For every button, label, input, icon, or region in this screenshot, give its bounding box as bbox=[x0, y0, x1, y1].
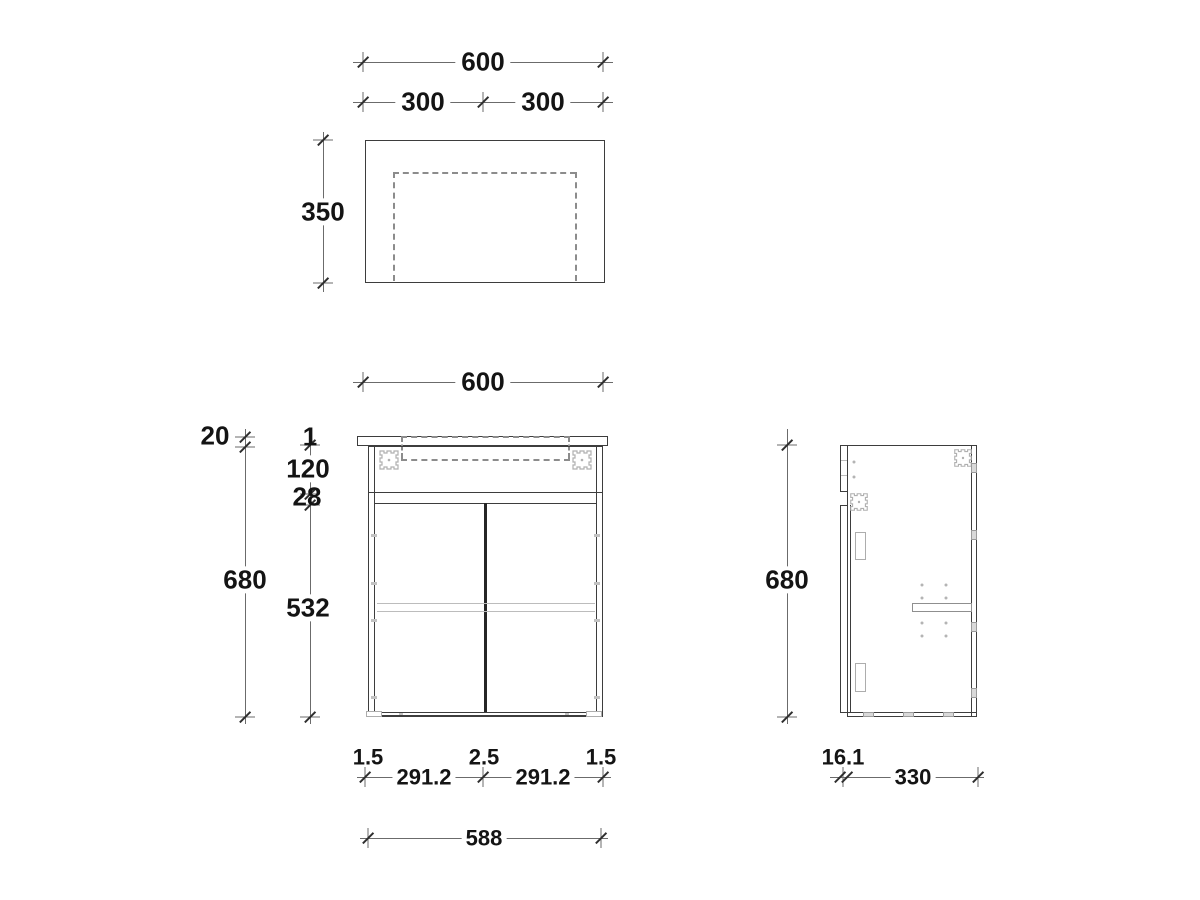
top-view-hidden-cabinet-top-edge bbox=[393, 172, 576, 174]
back-panel-connector bbox=[971, 463, 977, 473]
dim-label-top-depth: 350 bbox=[295, 198, 350, 225]
hinge-mark bbox=[371, 582, 377, 585]
hinge-mark bbox=[594, 534, 600, 537]
dim-label-countertop-thickness: 20 bbox=[199, 422, 232, 449]
hinge-mark bbox=[594, 696, 600, 699]
front-view-left-panel-inner-edge bbox=[374, 446, 375, 712]
hinge-mark bbox=[594, 582, 600, 585]
bottom-dowel-mark bbox=[903, 712, 914, 717]
hinge-mark bbox=[371, 619, 377, 622]
dim-label-gap-left: 1.5 bbox=[351, 745, 386, 768]
dim-label-gap-center: 2.5 bbox=[467, 745, 502, 768]
front-view-right-panel-inner-edge bbox=[596, 446, 597, 712]
dim-label-door-right: 291.2 bbox=[511, 765, 574, 788]
shelf-pin-hole bbox=[945, 635, 948, 638]
hanging-bracket-icon bbox=[570, 448, 594, 472]
hinge-plate bbox=[855, 532, 866, 560]
top-view-countertop-outline bbox=[365, 140, 605, 283]
top-view-hidden-cabinet-left-edge bbox=[393, 172, 395, 281]
bottom-fitting-mark bbox=[366, 711, 382, 717]
dim-tick bbox=[843, 767, 844, 787]
dim-label-carcass-width: 588 bbox=[462, 826, 507, 849]
shelf-pin-hole bbox=[945, 622, 948, 625]
front-view-hidden-shelf-bottom bbox=[377, 611, 595, 612]
cad-drawing-vanity-cabinet: 600 300 300 350 600 bbox=[0, 0, 1200, 900]
side-view-front-edge-line bbox=[850, 505, 851, 712]
shelf-pin-hole bbox=[921, 597, 924, 600]
side-view-body-outline bbox=[847, 445, 977, 717]
shelf-pin-hole bbox=[945, 597, 948, 600]
hanging-bracket-icon bbox=[848, 489, 870, 515]
dim-label-top-width: 600 bbox=[455, 48, 510, 75]
dim-label-front-height: 680 bbox=[217, 566, 272, 593]
dim-label-door-height: 532 bbox=[280, 594, 335, 621]
front-view-doors-bottom-edge bbox=[374, 712, 597, 713]
dim-label-top-right-half: 300 bbox=[515, 88, 570, 115]
hanging-bracket-icon bbox=[377, 448, 401, 472]
bottom-dowel-mark bbox=[863, 712, 874, 717]
shelf-pin-hole bbox=[921, 635, 924, 638]
hinge-mark bbox=[371, 696, 377, 699]
dim-label-gap-right: 1.5 bbox=[584, 745, 619, 768]
shelf-pin-hole bbox=[945, 584, 948, 587]
dim-label-top-gap: 1 bbox=[301, 423, 319, 450]
hinge-plate bbox=[855, 663, 866, 692]
dim-label-top-left-half: 300 bbox=[395, 88, 450, 115]
front-view-rail-bottom-line bbox=[368, 492, 603, 493]
dim-label-door-left: 291.2 bbox=[392, 765, 455, 788]
dim-label-side-depth: 330 bbox=[891, 765, 936, 788]
bottom-fitting-mark bbox=[586, 711, 602, 717]
dim-label-rail: 28 bbox=[291, 483, 324, 510]
front-view-door-center-gap bbox=[484, 503, 487, 712]
bottom-dowel-mark bbox=[399, 713, 403, 715]
shelf-pin-hole bbox=[921, 622, 924, 625]
dim-label-door-thickness: 16.1 bbox=[820, 745, 867, 768]
top-view-hidden-cabinet-right-edge bbox=[575, 172, 577, 281]
hinge-mark bbox=[371, 534, 377, 537]
dim-label-front-width: 600 bbox=[455, 368, 510, 395]
dim-label-top-section: 120 bbox=[280, 455, 335, 482]
side-view-back-panel-line bbox=[971, 445, 972, 717]
side-view-shelf-profile bbox=[912, 603, 972, 612]
back-panel-connector bbox=[971, 688, 977, 698]
front-view-hidden-shelf-top bbox=[377, 603, 595, 604]
hinge-mark bbox=[594, 619, 600, 622]
bottom-dowel-mark bbox=[943, 712, 954, 717]
back-panel-connector bbox=[971, 622, 977, 632]
shelf-pin-hole bbox=[921, 584, 924, 587]
front-view-hidden-basin-top bbox=[401, 436, 570, 438]
back-panel-connector bbox=[971, 530, 977, 540]
dim-label-side-height: 680 bbox=[759, 566, 814, 593]
bottom-dowel-mark bbox=[565, 713, 569, 715]
